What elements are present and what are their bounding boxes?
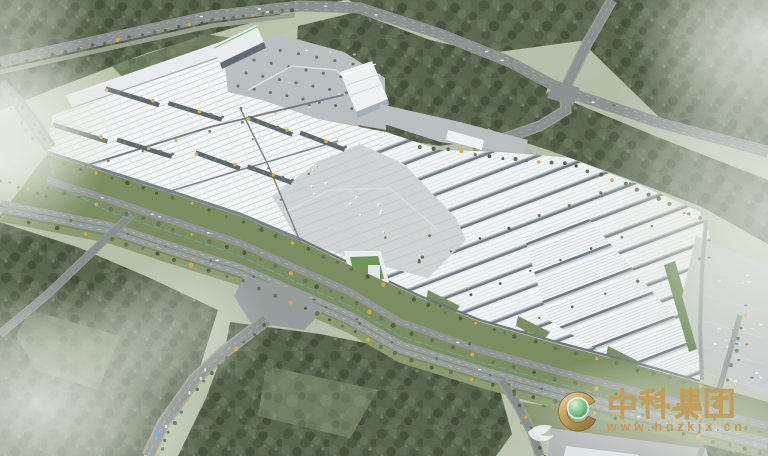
svg-text:www.hnzkjx.cn: www.hnzkjx.cn bbox=[606, 420, 746, 434]
